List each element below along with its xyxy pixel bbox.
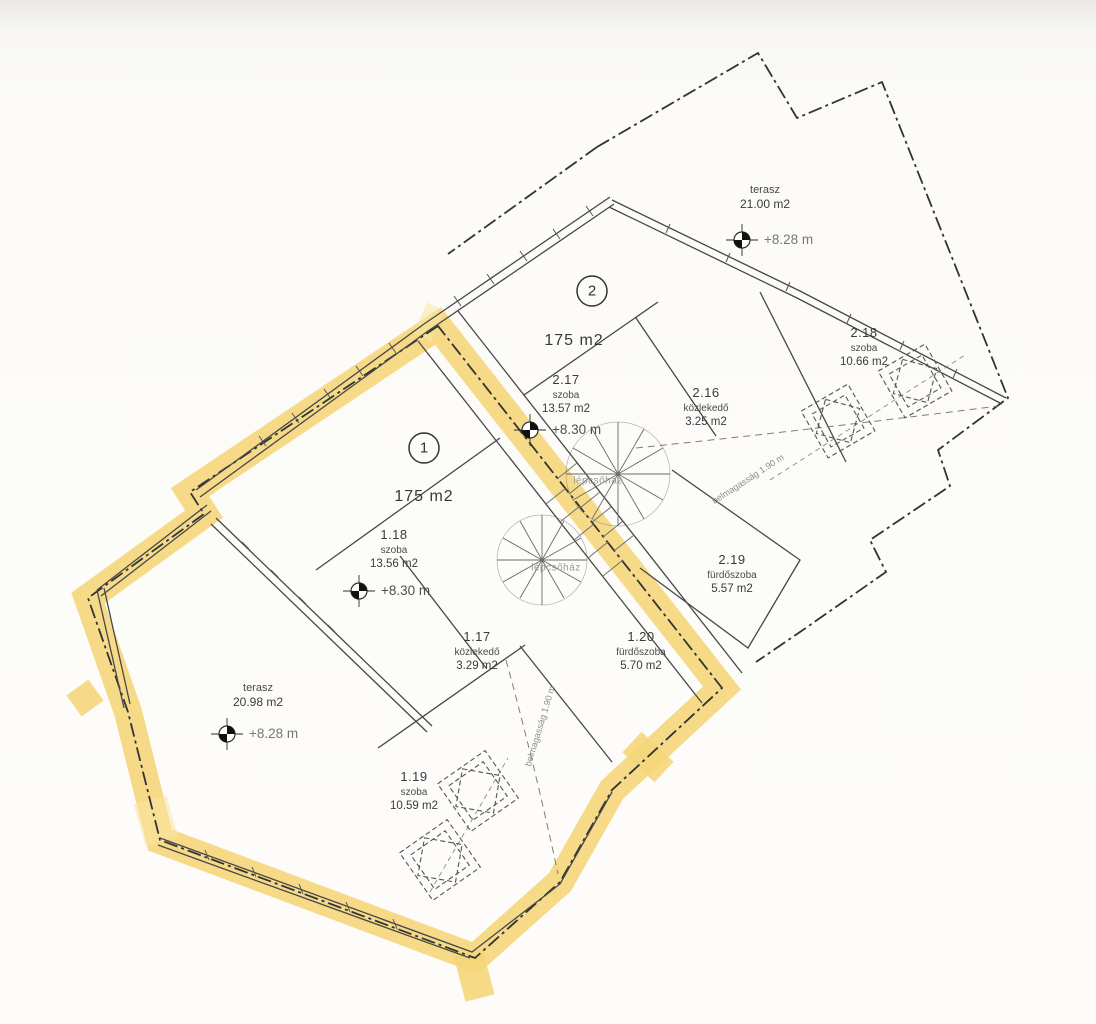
room-area: 10.66 m2	[840, 355, 888, 370]
room-name: szoba	[390, 786, 438, 799]
terrace-1-name: terasz	[233, 681, 283, 695]
room-label-1-18: 1.18 szoba 13.56 m2	[370, 527, 418, 572]
room-area: 3.25 m2	[683, 415, 728, 430]
room-label-1-19: 1.19 szoba 10.59 m2	[390, 769, 438, 814]
room-label-1-17: 1.17 közlekedő 3.29 m2	[454, 629, 499, 674]
skylight-2-18-b	[878, 344, 952, 418]
room-label-2-17: 2.17 szoba 13.57 m2	[542, 372, 590, 417]
room-id: 1.19	[390, 769, 438, 786]
room-label-1-20: 1.20 fürdőszoba 5.70 m2	[616, 629, 665, 674]
unit-1-number: 1	[420, 440, 428, 457]
room-id: 2.19	[707, 552, 756, 569]
terrace-1-label: terasz 20.98 m2	[233, 681, 283, 711]
terrace-2-label: terasz 21.00 m2	[740, 183, 790, 213]
terrace-1-elevation: +8.28 m	[249, 726, 298, 741]
stairwell-label-1: lépcsőház	[531, 563, 581, 574]
terrace-2-elevation: +8.28 m	[764, 232, 813, 247]
room-label-2-16: 2.16 közlekedő 3.25 m2	[683, 385, 728, 430]
room-name: közlekedő	[683, 402, 728, 415]
room-id: 2.17	[542, 372, 590, 389]
room-name: szoba	[840, 342, 888, 355]
room-name: szoba	[542, 389, 590, 402]
room-name: szoba	[370, 544, 418, 557]
floor-plan: terasz 21.00 m2 +8.28 m 2 175 m2 2.17 sz…	[0, 0, 1096, 1024]
room-area: 13.56 m2	[370, 557, 418, 572]
plan-drawing	[0, 0, 1096, 1024]
terrace-2-name: terasz	[740, 183, 790, 197]
room-name: fürdőszoba	[707, 569, 756, 582]
elevation-marker-1-18	[343, 575, 375, 607]
skylight-1-19-a	[438, 751, 519, 832]
unit-1-area: 175 m2	[394, 488, 453, 506]
walls	[97, 197, 1006, 958]
room-id: 1.20	[616, 629, 665, 646]
elevation-marker-terrace-1	[211, 718, 243, 750]
stairwell-label-2: lépcsőház	[573, 476, 623, 487]
room-area: 5.57 m2	[707, 582, 756, 597]
unit-2-number: 2	[588, 283, 596, 300]
room-id: 1.17	[454, 629, 499, 646]
room-1-18-elevation: +8.30 m	[381, 583, 430, 598]
room-area: 10.59 m2	[390, 799, 438, 814]
skylight-1-19-b	[400, 820, 481, 901]
room-name: fürdőszoba	[616, 646, 665, 659]
room-label-2-19: 2.19 fürdőszoba 5.57 m2	[707, 552, 756, 597]
room-area: 3.29 m2	[454, 659, 499, 674]
room-name: közlekedő	[454, 646, 499, 659]
room-area: 13.57 m2	[542, 402, 590, 417]
room-2-17-elevation: +8.30 m	[552, 422, 601, 437]
room-id: 1.18	[370, 527, 418, 544]
room-id: 2.16	[683, 385, 728, 402]
terrace-2-area: 21.00 m2	[740, 197, 790, 213]
room-id: 2.18	[840, 325, 888, 342]
elevation-marker-terrace-2	[726, 224, 758, 256]
unit-2-area: 175 m2	[544, 332, 603, 350]
boundary-dashdot	[88, 53, 1008, 958]
room-area: 5.70 m2	[616, 659, 665, 674]
terrace-1-area: 20.98 m2	[233, 695, 283, 711]
room-label-2-18: 2.18 szoba 10.66 m2	[840, 325, 888, 370]
